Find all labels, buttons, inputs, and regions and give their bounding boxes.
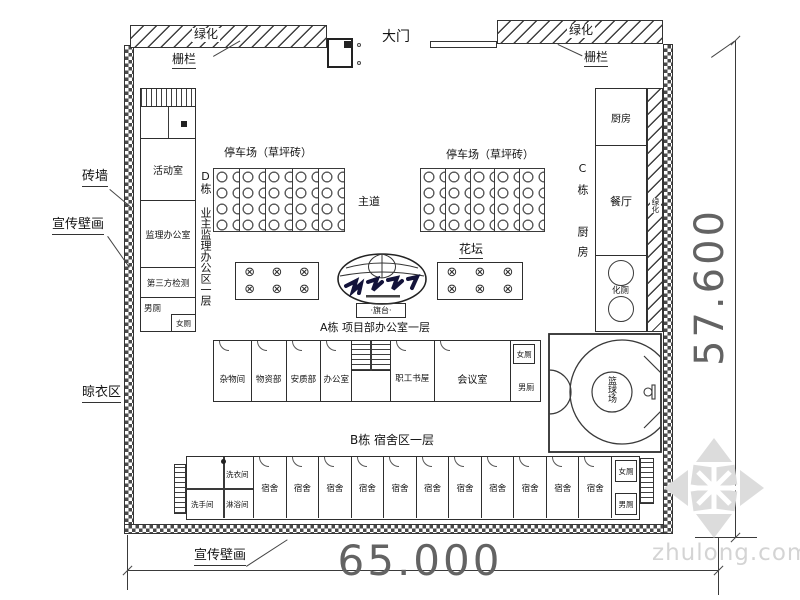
room-dining: 餐厅 (596, 146, 646, 256)
watermark-text: zhulong.com (652, 540, 800, 566)
plant-symbol: ⊗ (244, 283, 255, 296)
room-activity: 活动室 (141, 139, 195, 201)
parking-cell (318, 169, 344, 231)
flower-bed-label: 花坛 (459, 243, 483, 259)
dorm-room-label: 宿舍 (261, 482, 278, 494)
female-wc-d-label: 女厕 (176, 318, 191, 329)
room-washroom-label: 洗手间 (191, 499, 214, 510)
dim-bottom-ext-left (127, 535, 128, 590)
dim-right-value: 57.600 (687, 140, 729, 434)
room-supervision: 监理办公室 (141, 201, 195, 268)
plant-symbol: ⊗ (475, 283, 486, 296)
green-strip-c-label: 绿化 (650, 198, 661, 213)
flower-bed-grid: ⊗⊗⊗ ⊗⊗⊗ (437, 262, 523, 300)
room-office-a-label: 办公室 (323, 373, 349, 385)
plant-symbol: ⊗ (299, 266, 310, 279)
room-kitchen: 厨房 (596, 89, 646, 146)
male-wc-b-label: 男厕 (619, 499, 634, 510)
gate-hinge-top (357, 43, 361, 47)
dorm-room-label: 宿舍 (587, 482, 604, 494)
parking-cell (519, 169, 544, 231)
gate-bar (430, 41, 497, 48)
dorm-room-label: 宿舍 (326, 482, 343, 494)
parking-lot-right-label: 停车场（草坪砖） (446, 149, 534, 162)
parking-cell (494, 169, 519, 231)
plant-symbol: ⊗ (475, 266, 486, 279)
dorm-room: 宿舍 (351, 457, 384, 518)
room-supervision-label: 监理办公室 (145, 228, 190, 241)
stairs-b-right (640, 458, 654, 504)
building-c-label: C栋 厨房 (574, 162, 590, 334)
brick-wall-left (124, 45, 134, 525)
b-dorm-row: 宿舍 宿舍 宿舍 宿舍 宿舍 宿舍 宿舍 宿舍 宿舍 宿舍 宿舍 (253, 457, 611, 518)
room-dining-label: 餐厅 (610, 193, 632, 209)
wall-line (187, 488, 253, 490)
parking-cell (265, 169, 291, 231)
wc-d: 男厕 女厕 (141, 298, 195, 331)
parking-cell (445, 169, 470, 231)
room-materials-label: 物资部 (256, 373, 282, 385)
plant-symbol: ⊗ (272, 283, 283, 296)
plant-symbol: ⊗ (244, 266, 255, 279)
room-reading: 职工书屋 (390, 341, 434, 401)
parking-cell (470, 169, 495, 231)
dorm-room-label: 宿舍 (359, 482, 376, 494)
building-a-label: A栋 项目部办公室一层 (320, 322, 430, 335)
male-wc-d-label: 男厕 (144, 302, 161, 314)
septic-tank (608, 260, 634, 286)
building-b: 洗衣间 洗手间 淋浴间 宿舍 宿舍 宿舍 宿舍 宿舍 宿舍 宿舍 宿舍 宿舍 宿… (186, 456, 640, 520)
male-wc-a-label: 男厕 (518, 382, 534, 393)
gate-hinge-bottom (357, 61, 361, 65)
mural-bottom-leader (246, 539, 288, 567)
plant-symbol: ⊗ (272, 266, 283, 279)
plant-symbol: ⊗ (503, 283, 514, 296)
dorm-room: 宿舍 (254, 457, 286, 518)
dorm-room: 宿舍 (416, 457, 449, 518)
parking-cell (239, 169, 265, 231)
dorm-room: 宿舍 (578, 457, 611, 518)
building-d-label: D栋 业主监理办公区一层 (197, 170, 213, 338)
parking-cell (214, 169, 239, 231)
dim-bottom-value: 65.000 (295, 536, 545, 585)
female-wc-d: 女厕 (171, 314, 195, 331)
parking-lot-right (420, 168, 545, 232)
dorm-room: 宿舍 (286, 457, 319, 518)
gate-post-block (344, 41, 351, 48)
dorm-room: 宿舍 (513, 457, 546, 518)
equipment-block (181, 121, 187, 127)
room-office-a: 办公室 (320, 341, 351, 401)
stairs-d (141, 89, 195, 107)
stairs-rail (370, 341, 371, 371)
flower-bed-grid: ⊗⊗⊗ ⊗⊗⊗ (235, 262, 319, 300)
parking-cell (292, 169, 318, 231)
wc-b: 女厕 男厕 (611, 457, 641, 518)
room-meeting-label: 会议室 (457, 371, 487, 386)
building-d: 活动室 监理办公室 第三方检测 男厕 女厕 (140, 88, 196, 332)
female-wc-a-label: 女厕 (517, 349, 532, 360)
drying-area-label: 晾衣区 (82, 386, 121, 403)
plant-symbol: ⊗ (447, 266, 458, 279)
basketball-label: 篮球场 (605, 376, 618, 412)
mural-left-label: 宣传壁画 (52, 218, 104, 235)
septic-tank (608, 296, 634, 322)
room-septic: 化厕 (596, 256, 646, 329)
dorm-room-label: 宿舍 (554, 482, 571, 494)
company-logo (336, 252, 428, 306)
wall-line (168, 107, 169, 138)
dorm-room: 宿舍 (546, 457, 579, 518)
parking-lot-left-label: 停车场（草坪砖） (224, 147, 312, 160)
room-materials: 物资部 (251, 341, 286, 401)
room-safety: 安质部 (286, 341, 321, 401)
dorm-room-label: 宿舍 (522, 482, 539, 494)
room-third-party: 第三方检测 (141, 268, 195, 298)
room-third-party-label: 第三方检测 (147, 277, 190, 289)
building-b-label: B栋 宿舍区一层 (350, 434, 434, 448)
flag-stand-label: ·旗台· (370, 305, 391, 316)
building-a: 杂物间 物资部 安质部 办公室 职工书屋 会议室 女厕 男厕 (213, 340, 541, 402)
green-strip-left-label: 绿化 (192, 28, 220, 42)
plant-symbol: ⊗ (447, 283, 458, 296)
female-wc-b-label: 女厕 (619, 466, 634, 477)
dorm-room-label: 宿舍 (424, 482, 441, 494)
dorm-room: 宿舍 (383, 457, 416, 518)
dorm-room-label: 宿舍 (391, 482, 408, 494)
room-laundry-label: 洗衣间 (226, 469, 249, 480)
green-strip-right-label: 绿化 (567, 24, 595, 38)
fence-right-leader (558, 44, 583, 56)
room-reading-label: 职工书屋 (395, 372, 429, 384)
room-meeting: 会议室 (434, 341, 511, 401)
door-dot (221, 459, 226, 464)
flower-bed-left: ⊗⊗⊗ ⊗⊗⊗ (235, 262, 319, 300)
dorm-room-label: 宿舍 (457, 482, 474, 494)
room-equipment-d (141, 107, 195, 139)
flower-bed-right: ⊗⊗⊗ ⊗⊗⊗ (437, 262, 523, 300)
brick-wall-bottom (124, 524, 673, 534)
female-wc-b: 女厕 (615, 460, 637, 482)
b-service-section: 洗衣间 洗手间 淋浴间 (187, 457, 253, 518)
fence-left-label: 栅栏 (172, 53, 196, 69)
flag-stand: ·旗台· (356, 303, 406, 318)
room-septic-label: 化厕 (612, 284, 629, 296)
green-strip-left (130, 25, 327, 48)
mural-bottom-label: 宣传壁画 (194, 549, 246, 566)
room-kitchen-label: 厨房 (611, 110, 631, 125)
parking-cell (421, 169, 445, 231)
room-activity-label: 活动室 (153, 162, 183, 177)
brick-wall-label: 砖墙 (82, 170, 108, 187)
parking-lot-left (213, 168, 345, 232)
fence-right-label: 栅栏 (584, 51, 608, 67)
gate-label: 大门 (382, 29, 410, 45)
room-shower-label: 淋浴间 (226, 499, 249, 510)
dorm-room-label: 宿舍 (489, 482, 506, 494)
male-wc-b: 男厕 (615, 493, 637, 515)
wc-a: 女厕 男厕 (510, 341, 540, 401)
plant-symbol: ⊗ (299, 283, 310, 296)
room-storage-label: 杂物间 (220, 373, 246, 385)
stairs-b-left (174, 464, 186, 514)
site-plan: 绿化 栅栏 大门 绿化 栅栏 砖墙 宣传壁画 晾衣区 活动室 监理办公室 第三方… (0, 0, 800, 600)
dorm-room: 宿舍 (481, 457, 514, 518)
female-wc-a: 女厕 (513, 344, 535, 364)
dorm-room: 宿舍 (448, 457, 481, 518)
dorm-room-label: 宿舍 (294, 482, 311, 494)
stairs-a (351, 341, 390, 401)
main-road-label: 主道 (358, 196, 380, 209)
watermark-logo (662, 436, 766, 540)
dorm-room: 宿舍 (318, 457, 351, 518)
plant-symbol: ⊗ (503, 266, 514, 279)
room-storage: 杂物间 (214, 341, 251, 401)
building-c: 厨房 餐厅 化厕 (595, 88, 647, 332)
room-safety-label: 安质部 (291, 373, 317, 385)
